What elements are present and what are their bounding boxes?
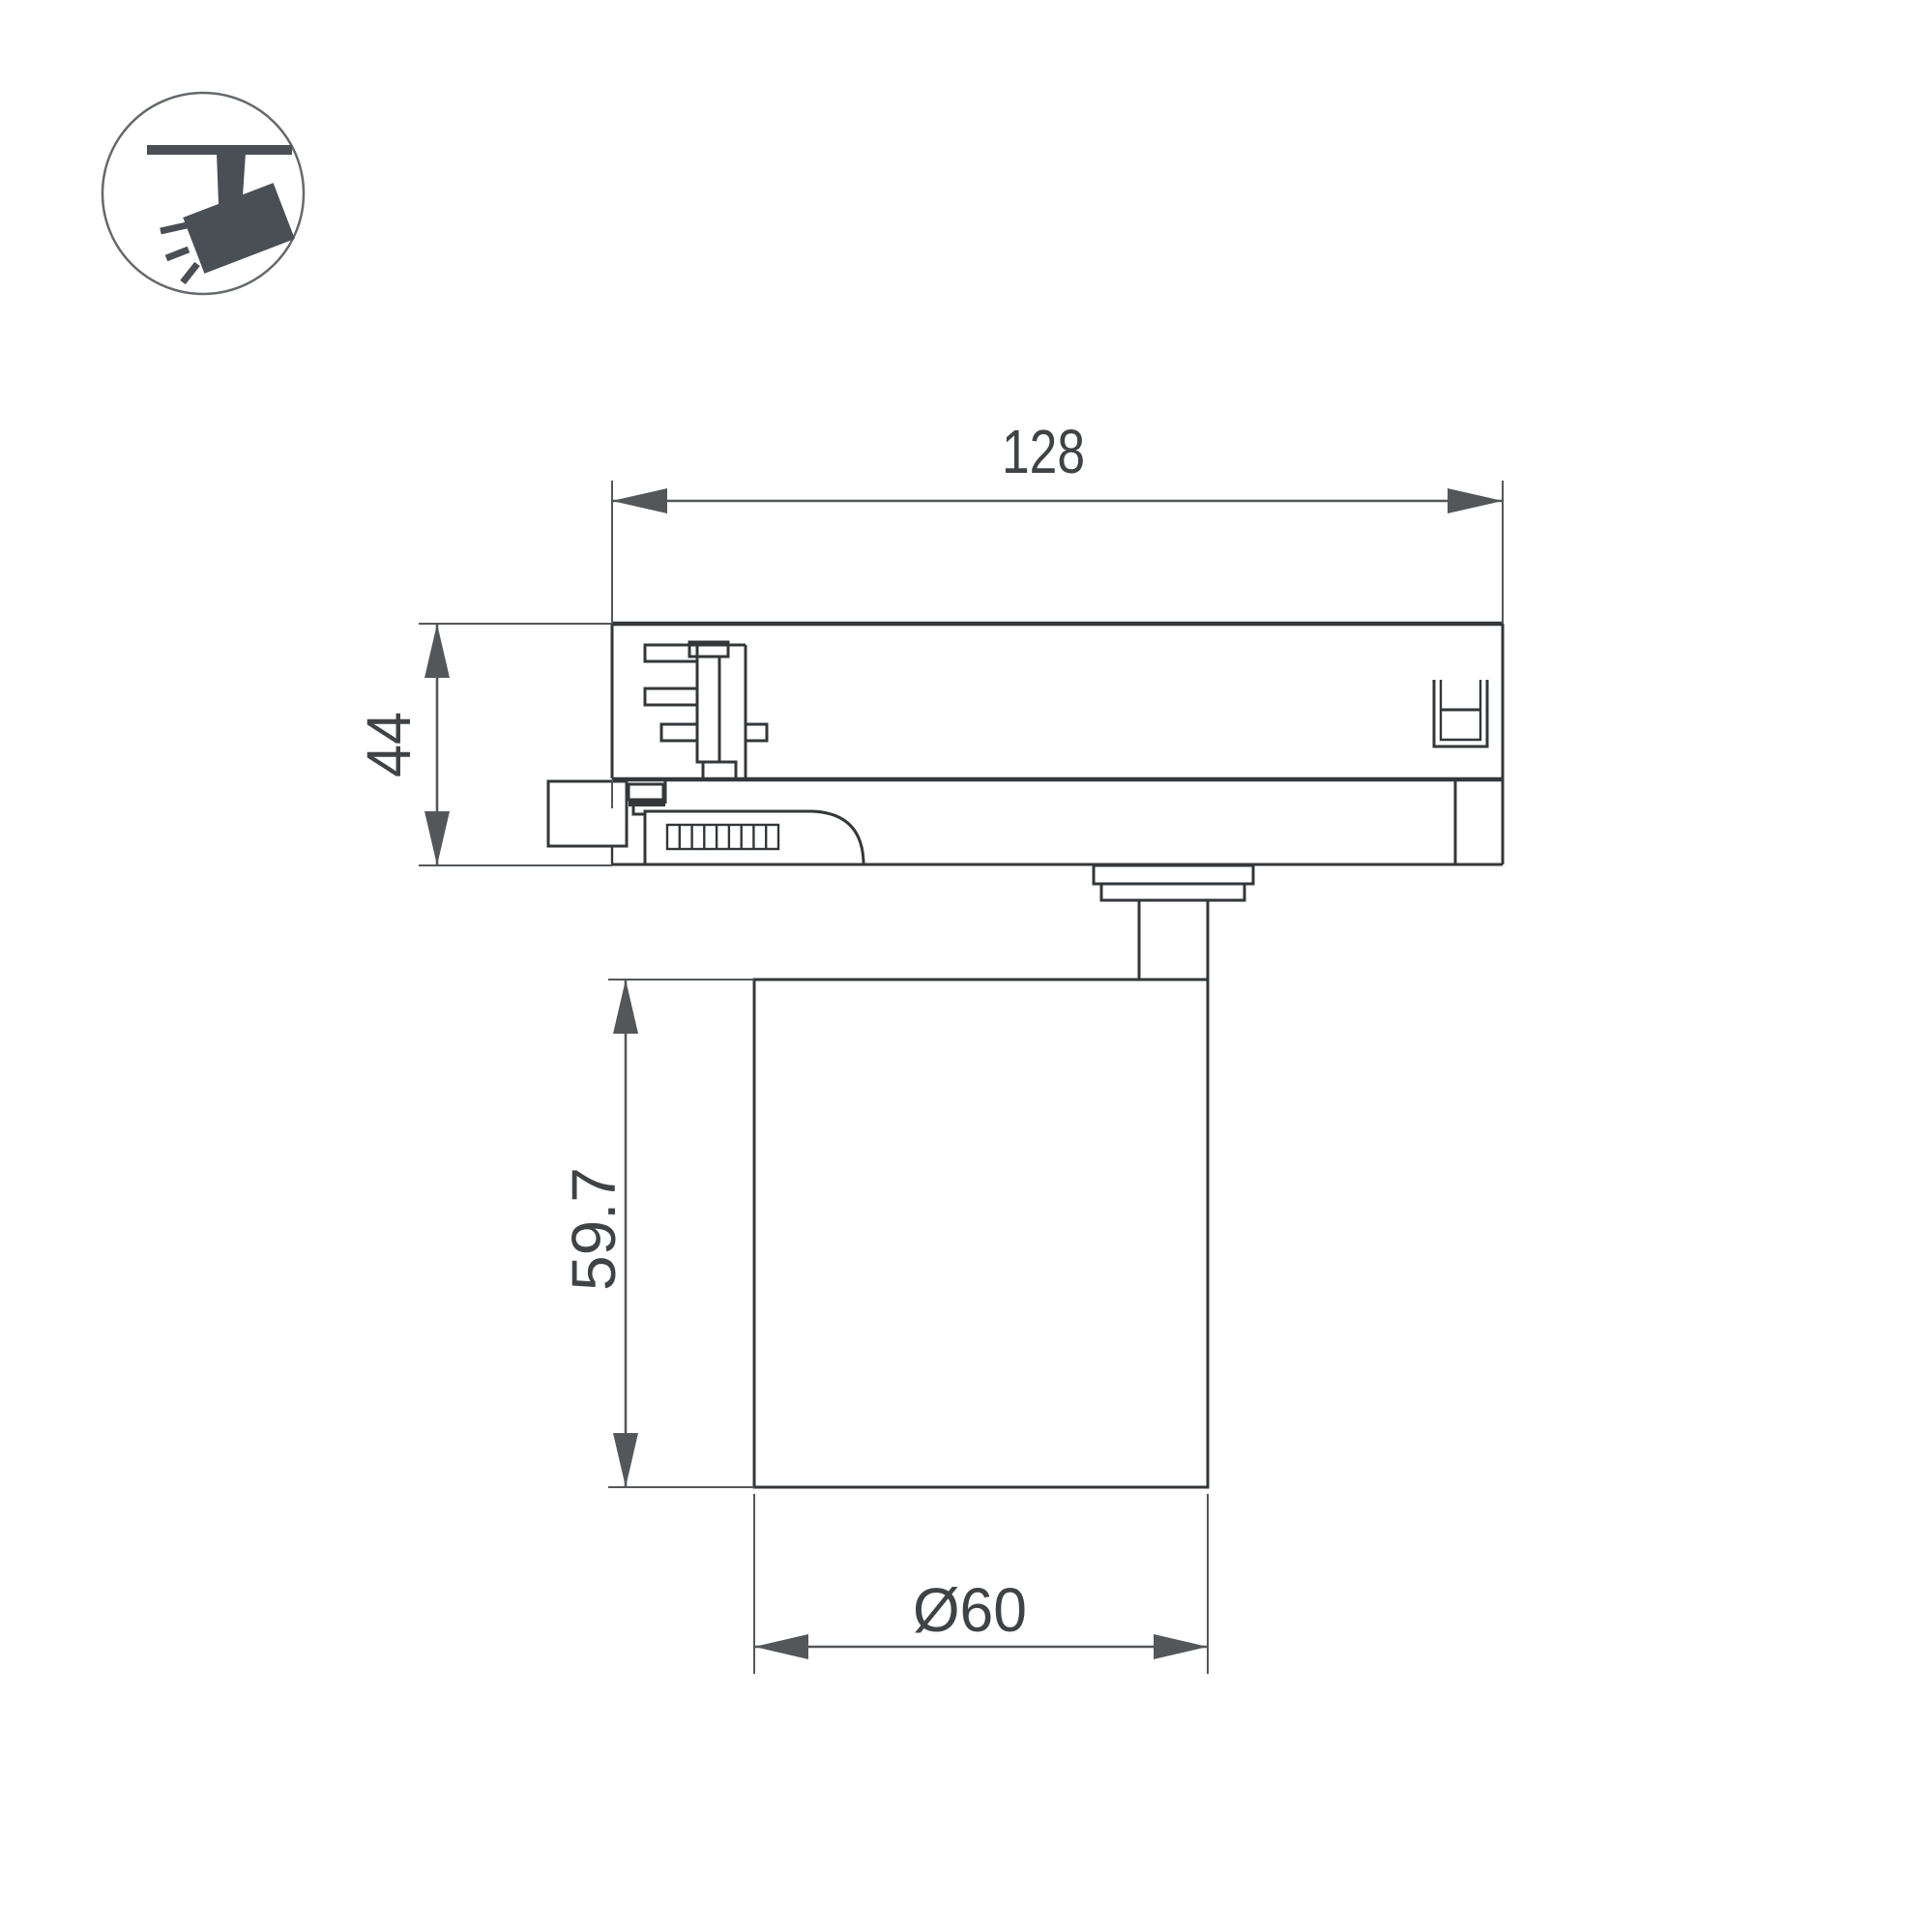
contact-prong-bottom (661, 724, 697, 741)
swivel-joint (1094, 865, 1253, 980)
arrowhead-bottom (424, 811, 450, 865)
extension-lines (608, 980, 754, 1487)
arrowhead-right (1154, 1634, 1208, 1659)
flange-details (548, 780, 864, 864)
dimension-body-height-label: 59.7 (559, 1167, 629, 1291)
side-lock-block (548, 781, 627, 846)
u-clip-outer (1434, 680, 1487, 746)
arrowhead-top (613, 980, 638, 1034)
swivel-disc-lower (1101, 884, 1244, 900)
u-clip (1434, 680, 1487, 746)
contact-block (645, 642, 767, 779)
housing-step (633, 805, 645, 864)
extension-lines (419, 624, 612, 865)
dimension-body-diameter-label: Ø60 (913, 1575, 1027, 1645)
latch (629, 784, 663, 800)
contact-prong-middle (645, 688, 697, 705)
dimension-track-height: 44 (354, 624, 612, 865)
swivel-disc-upper (1094, 865, 1253, 884)
arrowhead-bottom (613, 1433, 638, 1487)
track-spotlight-icon (102, 93, 304, 294)
dimension-body-diameter: Ø60 (754, 1494, 1208, 1674)
dimensional-drawing: 128 44 59.7 Ø60 (0, 0, 1932, 1932)
vent-grille (667, 825, 778, 849)
drawing-page: 128 44 59.7 Ø60 (0, 0, 1932, 1932)
track-adapter (548, 624, 1503, 980)
dimension-track-height-label: 44 (354, 712, 424, 777)
arrowhead-left (612, 488, 667, 513)
dimension-body-height: 59.7 (559, 980, 754, 1487)
arrowhead-left (754, 1634, 808, 1659)
swivel-stem (1139, 900, 1208, 980)
contact-column (697, 657, 719, 762)
vent-grille-slats (680, 825, 766, 849)
arrowhead-right (1448, 488, 1503, 513)
contact-foot (703, 762, 736, 779)
contact-stub (746, 724, 767, 741)
arrowhead-top (424, 624, 450, 678)
dimension-track-width-label: 128 (1002, 417, 1085, 486)
lamp-body (754, 980, 1208, 1487)
